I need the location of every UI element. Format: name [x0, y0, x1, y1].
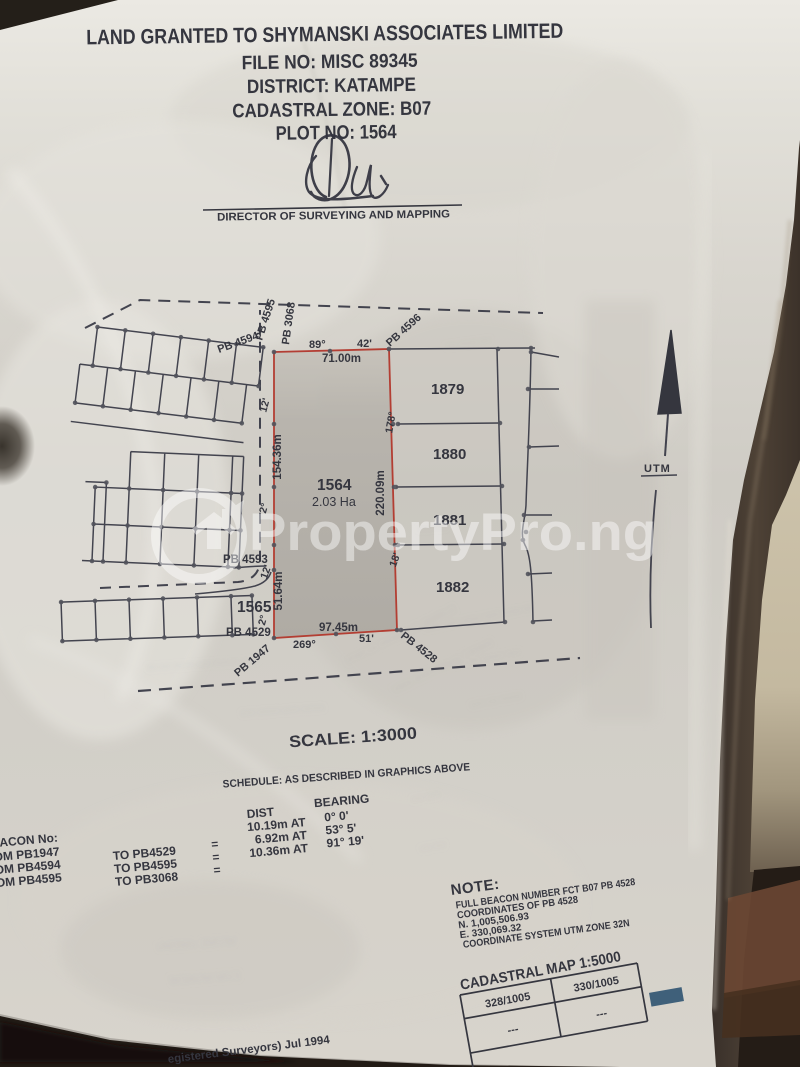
svg-text:DISTRICT: KATAMPE: DISTRICT: KATAMPE — [247, 74, 416, 98]
svg-text:1879: 1879 — [431, 381, 464, 398]
svg-text:269°: 269° — [293, 639, 316, 651]
svg-text:1882: 1882 — [436, 579, 469, 596]
svg-text:1880: 1880 — [433, 446, 466, 463]
svg-text:PropertyPro.ng: PropertyPro.ng — [249, 503, 657, 562]
svg-text:154.36m: 154.36m — [272, 434, 284, 479]
svg-text:FILE NO: MISC 89345: FILE NO: MISC 89345 — [241, 50, 417, 74]
svg-text:UTM: UTM — [644, 463, 671, 475]
svg-text:71.00m: 71.00m — [322, 353, 361, 365]
svg-text:=: = — [213, 863, 221, 878]
svg-text:42': 42' — [357, 338, 372, 350]
svg-text:1565: 1565 — [237, 599, 272, 616]
svg-text:89°: 89° — [309, 339, 326, 351]
svg-text:51.64m: 51.64m — [273, 571, 285, 610]
svg-text:1564: 1564 — [317, 477, 352, 494]
svg-text:CADASTRAL ZONE: B07: CADASTRAL ZONE: B07 — [232, 98, 431, 123]
svg-text:PB 4529: PB 4529 — [226, 627, 271, 639]
svg-text:mw vm: mw vm — [418, 521, 447, 533]
svg-text:97.45m: 97.45m — [319, 622, 358, 634]
svg-text:PLOT NO: 1564: PLOT NO: 1564 — [275, 121, 396, 145]
